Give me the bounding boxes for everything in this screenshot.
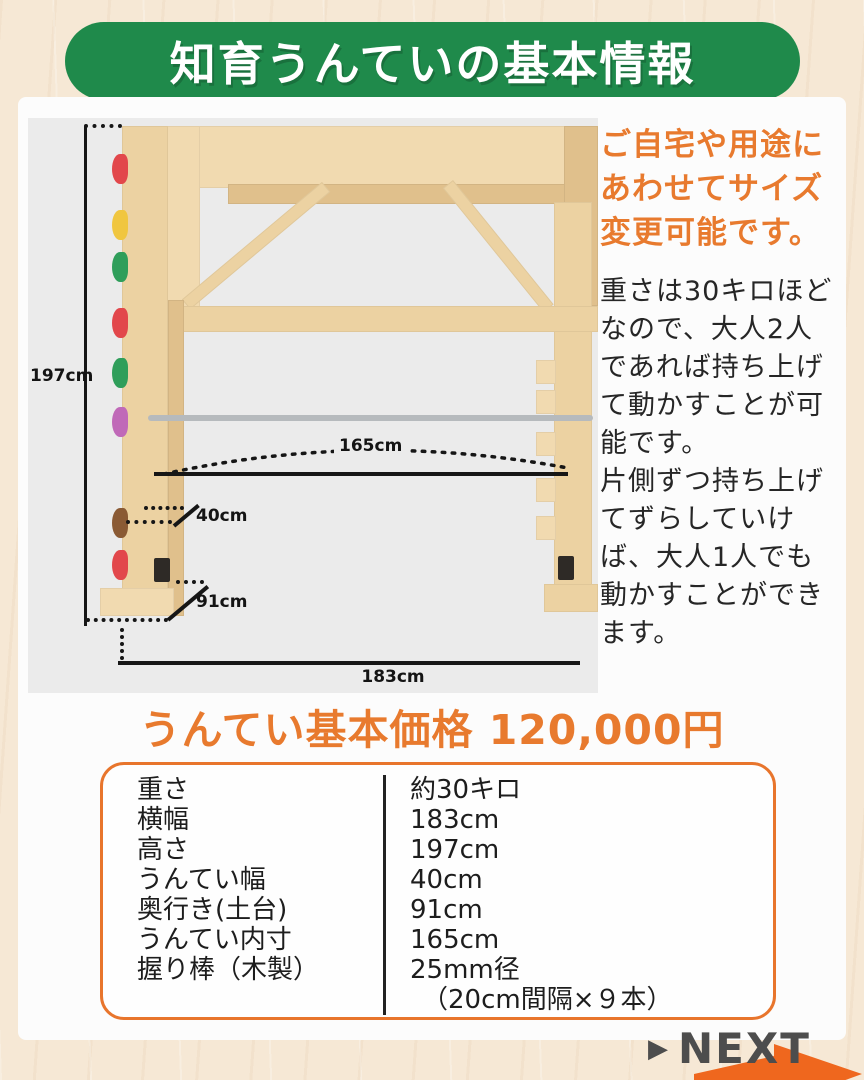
spec-table: 重さ約30キロ横幅183cm高さ197cmうんてい幅40cm奥行き(土台)91c… (100, 762, 776, 1020)
product-diagram: 197cm 165cm 40cm 91cm 183cm (28, 118, 598, 693)
dim-inner-label: 165cm (334, 436, 407, 456)
spec-value: 197cm (383, 835, 773, 865)
dim-width-dotted-v (120, 628, 124, 660)
spec-label: うんてい幅 (103, 865, 383, 895)
spec-label: 奥行き(土台) (103, 895, 383, 925)
spec-value: 約30キロ (383, 775, 773, 805)
spec-row: 高さ197cm (103, 835, 773, 865)
body-text-line: なので、大人2人 (600, 311, 846, 349)
dim-40-label: 40cm (196, 506, 247, 526)
dim-91-label: 91cm (196, 592, 247, 612)
body-text-line: ます。 (600, 615, 846, 653)
spec-label: 高さ (103, 835, 383, 865)
body-text-line: 動かすことができ (600, 577, 846, 615)
body-text-line: であれば持ち上げ (600, 349, 846, 387)
highlight-line: あわせてサイズ (600, 167, 846, 211)
dim-91-dotted-top (176, 580, 204, 584)
highlight-line: 変更可能です。 (600, 211, 846, 255)
body-text-line: て動かすことが可 (600, 387, 846, 425)
spec-value: 165cm (383, 925, 773, 955)
dim-inner-arc (28, 118, 598, 693)
body-text-line: ば、大人1人でも (600, 539, 846, 577)
weight-description: 重さは30キロほどなので、大人2人であれば持ち上げて動かすことが可能です。片側ず… (600, 273, 846, 653)
body-text-line: 重さは30キロほど (600, 273, 846, 311)
dim-inner-line (154, 472, 568, 476)
info-column: ご自宅や用途にあわせてサイズ変更可能です。 重さは30キロほどなので、大人2人で… (600, 123, 846, 653)
spec-value: 40cm (383, 865, 773, 895)
spec-label: 握り棒（木製） (103, 955, 383, 1015)
body-text-line: 能です。 (600, 425, 846, 463)
page-title: 知育うんていの基本情報 (170, 28, 696, 94)
size-change-highlight: ご自宅や用途にあわせてサイズ変更可能です。 (600, 123, 846, 255)
spec-value: 91cm (383, 895, 773, 925)
spec-row: 握り棒（木製）25mm径（20cm間隔×９本） (103, 955, 773, 1015)
dim-40-dotted1 (144, 506, 184, 510)
dim-width-label: 183cm (338, 667, 448, 687)
spec-row: 横幅183cm (103, 805, 773, 835)
spec-value: 183cm (383, 805, 773, 835)
price-heading: うんてい基本価格 120,000円 (18, 696, 846, 756)
spec-row: 奥行き(土台)91cm (103, 895, 773, 925)
content-card: 197cm 165cm 40cm 91cm 183cm ご自宅や用途にあわせてサ… (18, 97, 846, 1040)
spec-row: うんてい幅40cm (103, 865, 773, 895)
body-text-line: 片側ずつ持ち上げ (600, 463, 846, 501)
spec-label: 重さ (103, 775, 383, 805)
spec-rows: 重さ約30キロ横幅183cm高さ197cmうんてい幅40cm奥行き(土台)91c… (103, 775, 773, 1015)
next-button[interactable]: ▶ NEXT (648, 1024, 811, 1073)
spec-row: うんてい内寸165cm (103, 925, 773, 955)
play-icon: ▶ (648, 1034, 668, 1064)
spec-label: うんてい内寸 (103, 925, 383, 955)
dim-width-line (118, 661, 580, 665)
dim-40-dotted2 (126, 520, 172, 524)
spec-row: 重さ約30キロ (103, 775, 773, 805)
highlight-line: ご自宅や用途に (600, 123, 846, 167)
body-text-line: てずらしていけ (600, 501, 846, 539)
spec-label: 横幅 (103, 805, 383, 835)
dim-91-dotted-bottom (86, 618, 168, 622)
header-banner: 知育うんていの基本情報 (65, 22, 800, 100)
spec-value: 25mm径（20cm間隔×９本） (383, 955, 773, 1015)
next-label: NEXT (678, 1024, 811, 1073)
